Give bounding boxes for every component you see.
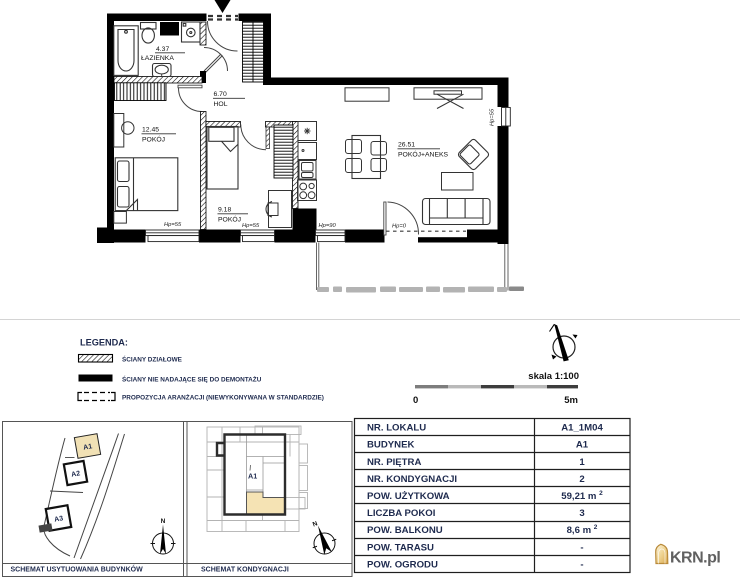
svg-text:LICZBA POKOI: LICZBA POKOI — [367, 508, 436, 519]
svg-text:5m: 5m — [564, 395, 578, 406]
svg-text:2: 2 — [579, 474, 584, 485]
svg-text:Hp=55: Hp=55 — [164, 222, 182, 228]
svg-text:ŚCIANY NIE NADAJĄCE SIĘ DO DEM: ŚCIANY NIE NADAJĄCE SIĘ DO DEMONTAŻU — [122, 375, 262, 384]
svg-text:Hp=0: Hp=0 — [392, 224, 407, 230]
svg-text:LEGENDA:: LEGENDA: — [80, 338, 128, 348]
svg-text:NR. PIĘTRA: NR. PIĘTRA — [367, 457, 421, 468]
svg-text:POKÓJ: POKÓJ — [218, 215, 241, 224]
svg-text:POW. UŻYTKOWA: POW. UŻYTKOWA — [367, 491, 450, 502]
svg-text:12.45: 12.45 — [142, 127, 159, 134]
svg-text:A1_1M04: A1_1M04 — [561, 423, 603, 434]
svg-text:-: - — [580, 542, 583, 553]
svg-text:1: 1 — [579, 457, 585, 468]
svg-text:N: N — [161, 518, 166, 525]
svg-text:Hp=55: Hp=55 — [490, 108, 496, 126]
svg-text:ŚCIANY DZIAŁOWE: ŚCIANY DZIAŁOWE — [122, 355, 183, 364]
svg-text:Hp=90: Hp=90 — [319, 223, 337, 229]
svg-text:NR. KONDYGNACJI: NR. KONDYGNACJI — [367, 474, 457, 485]
svg-text:A1: A1 — [576, 440, 589, 451]
svg-text:9.18: 9.18 — [218, 207, 231, 214]
svg-text:N: N — [312, 520, 319, 528]
svg-text:SCHEMAT KONDYGNACJI: SCHEMAT KONDYGNACJI — [201, 566, 289, 573]
svg-text:PROPOZYCJA ARANŻACJI (NIEWYKON: PROPOZYCJA ARANŻACJI (NIEWYKONYWANA W ST… — [122, 393, 324, 402]
svg-text:POKÓJ+ANEKS: POKÓJ+ANEKS — [398, 150, 449, 159]
svg-text:BUDYNEK: BUDYNEK — [367, 440, 415, 451]
svg-text:NR. LOKALU: NR. LOKALU — [367, 423, 426, 434]
svg-text:SCHEMAT USYTUOWANIA BUDYNKÓW: SCHEMAT USYTUOWANIA BUDYNKÓW — [11, 564, 144, 573]
svg-text:59,21 m 2: 59,21 m 2 — [561, 490, 603, 502]
svg-text:3: 3 — [579, 508, 584, 519]
svg-text:A1: A1 — [248, 472, 257, 481]
svg-text:POW. OGRODU: POW. OGRODU — [367, 559, 438, 570]
svg-text:POW. BALKONU: POW. BALKONU — [367, 525, 443, 536]
svg-text:4.37: 4.37 — [156, 46, 169, 53]
svg-text:8,6 m 2: 8,6 m 2 — [567, 524, 598, 536]
svg-text:POW. TARASU: POW. TARASU — [367, 542, 434, 553]
svg-text:0: 0 — [413, 395, 418, 406]
svg-text:HOL: HOL — [214, 101, 228, 108]
svg-text:6.70: 6.70 — [214, 91, 227, 98]
svg-text:Hp=55: Hp=55 — [242, 223, 260, 229]
svg-text:26.51: 26.51 — [398, 142, 415, 149]
svg-text:ŁAZIENKA: ŁAZIENKA — [141, 55, 174, 62]
svg-text:KRN.pl: KRN.pl — [670, 550, 720, 567]
svg-text:skala 1:100: skala 1:100 — [528, 371, 579, 382]
svg-text:-: - — [580, 559, 583, 570]
svg-text:POKÓJ: POKÓJ — [142, 135, 165, 144]
